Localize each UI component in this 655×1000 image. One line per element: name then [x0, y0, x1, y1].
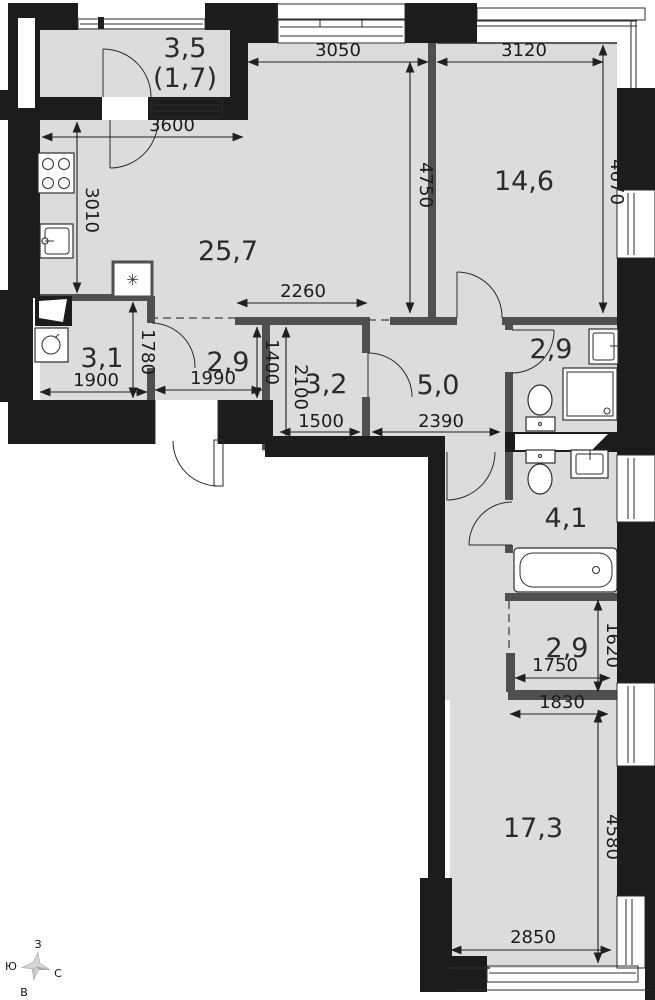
svg-text:1830: 1830 — [539, 692, 585, 713]
svg-text:2850: 2850 — [510, 927, 556, 948]
room-label-hallway: 2,9 — [207, 347, 250, 378]
room-label-wardrobe: 2,9 — [546, 633, 589, 664]
kitchen-sink-icon — [40, 224, 73, 258]
svg-text:3050: 3050 — [315, 40, 361, 61]
svg-text:1500: 1500 — [298, 411, 344, 432]
toilet-icon-shower-room — [526, 385, 555, 431]
vent-shaft-symbol: ✳ — [126, 271, 139, 289]
compass-north: С — [54, 967, 62, 980]
svg-text:3600: 3600 — [149, 115, 195, 136]
bathtub-icon — [514, 548, 617, 592]
room-label-hall: 5,0 — [417, 370, 460, 401]
window-bathroom-right — [617, 455, 655, 522]
stove-icon — [38, 153, 74, 193]
svg-text:4750: 4750 — [415, 162, 436, 208]
duct-bathrooms — [515, 434, 608, 450]
svg-text:3120: 3120 — [501, 40, 547, 61]
window-wardrobe-right — [617, 683, 655, 766]
shower-tray-icon — [563, 368, 617, 420]
room-label-loggia: 3,5 — [164, 33, 207, 64]
room-label-storage: 3,2 — [305, 369, 348, 400]
room-label-bedroom2: 17,3 — [503, 813, 563, 844]
sink-icon-bathroom — [571, 450, 608, 478]
svg-text:1400: 1400 — [261, 339, 282, 385]
window-loggia-left — [18, 18, 35, 108]
floor-plan-page: ✳ — [0, 0, 655, 1000]
svg-text:3010: 3010 — [81, 187, 102, 233]
floor-plan: ✳ — [0, 0, 655, 1000]
room-label-bathroom-guest: 3,1 — [81, 343, 124, 374]
room-label-bedroom: 14,6 — [494, 166, 554, 197]
room-label-shower-room: 2,9 — [530, 334, 573, 365]
bath-sink-icon — [589, 329, 620, 364]
svg-text:1620: 1620 — [602, 622, 623, 668]
washing-machine-icon — [35, 328, 68, 362]
window-bedroom2-right — [617, 896, 645, 968]
compass-west: З — [34, 938, 41, 951]
room-label-kitchen-living: 25,7 — [198, 236, 258, 267]
svg-text:2260: 2260 — [280, 281, 326, 302]
compass-south: Ю — [5, 960, 17, 973]
entrance-opening — [155, 400, 218, 444]
svg-text:1780: 1780 — [137, 329, 158, 375]
vent-shaft: ✳ — [113, 262, 152, 297]
svg-text:2390: 2390 — [418, 411, 464, 432]
duct-bathroom-guest — [39, 299, 67, 322]
svg-text:4580: 4580 — [602, 814, 623, 860]
compass-rose: З Ю С В — [5, 938, 62, 999]
room-label-bathroom-master: 4,1 — [545, 503, 588, 534]
compass-east: В — [20, 986, 28, 999]
door-entrance — [173, 440, 223, 486]
room-label-loggia-reduced: (1,7) — [153, 63, 217, 94]
svg-text:4670: 4670 — [606, 159, 627, 205]
